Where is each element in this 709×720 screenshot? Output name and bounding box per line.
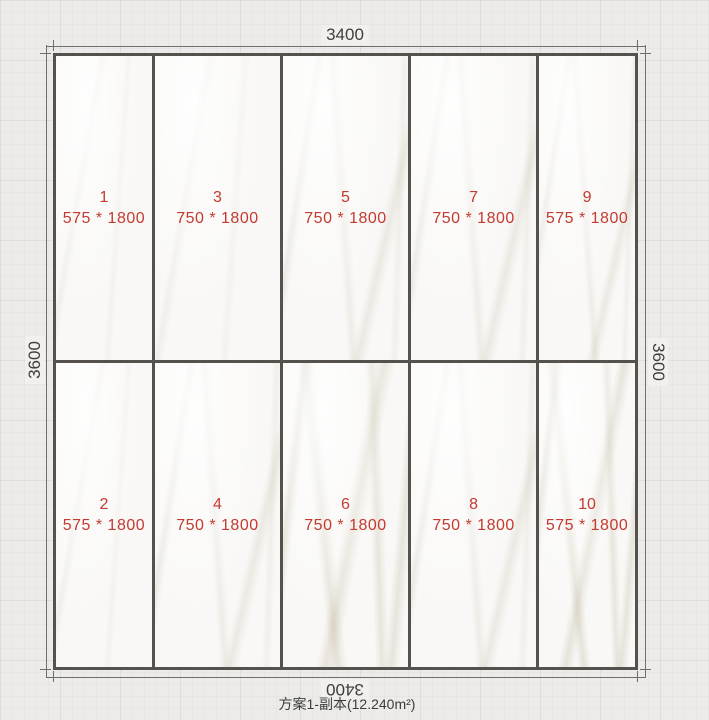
tile[interactable]: 4 750 * 1800 [155,363,280,667]
tile-label: 7 750 * 1800 [432,188,514,229]
tile-label: 10 575 * 1800 [546,495,628,536]
tile-label: 8 750 * 1800 [432,495,514,536]
tile-number: 2 [63,495,145,515]
tile-number: 4 [176,495,258,515]
tile-label: 6 750 * 1800 [304,495,386,536]
tile[interactable]: 10 575 * 1800 [539,363,635,667]
tile-label: 5 750 * 1800 [304,188,386,229]
tile-size: 750 * 1800 [432,515,514,536]
tile-number: 3 [176,188,258,208]
dimension-label-left: 3600 [25,336,45,384]
tile-size: 750 * 1800 [304,515,386,536]
tile[interactable]: 3 750 * 1800 [155,56,280,360]
dimension-tick [637,40,638,51]
tile-number: 10 [546,495,628,515]
tile-size: 750 * 1800 [304,208,386,229]
tile[interactable]: 5 750 * 1800 [283,56,408,360]
tile-label: 1 575 * 1800 [63,188,145,229]
tile-number: 5 [304,188,386,208]
dimension-tick [640,669,651,670]
tile-label: 2 575 * 1800 [63,495,145,536]
tile-size: 750 * 1800 [176,208,258,229]
tile[interactable]: 7 750 * 1800 [411,56,536,360]
dimension-line-left [46,45,47,678]
tile[interactable]: 9 575 * 1800 [539,56,635,360]
tile-number: 9 [546,188,628,208]
tile-label: 4 750 * 1800 [176,495,258,536]
tile-number: 6 [304,495,386,515]
tile-size: 575 * 1800 [546,515,628,536]
dimension-line-bottom [47,677,646,678]
tile-number: 7 [432,188,514,208]
dimension-tick [637,671,638,682]
dimension-tick [53,671,54,682]
dimension-tick [53,40,54,51]
dimension-tick [40,669,51,670]
tile[interactable]: 1 575 * 1800 [56,56,152,360]
tile-size: 575 * 1800 [546,208,628,229]
dimension-line-top [47,46,646,47]
scheme-caption: 方案1-副本(12.240m²) [279,694,416,714]
dimension-label-top: 3400 [321,25,369,45]
dimension-tick [40,53,51,54]
dimension-label-right: 3600 [648,338,668,386]
tile-label: 9 575 * 1800 [546,188,628,229]
dimension-line-right [645,45,646,678]
tile[interactable]: 6 750 * 1800 [283,363,408,667]
layout-canvas: 1 575 * 1800 3 750 * 1800 5 750 * 1800 7… [0,0,709,720]
tile-size: 750 * 1800 [432,208,514,229]
tile[interactable]: 2 575 * 1800 [56,363,152,667]
tile-label: 3 750 * 1800 [176,188,258,229]
tile[interactable]: 8 750 * 1800 [411,363,536,667]
tile-number: 8 [432,495,514,515]
dimension-tick [640,53,651,54]
tile-grid: 1 575 * 1800 3 750 * 1800 5 750 * 1800 7… [53,53,638,670]
tile-number: 1 [63,188,145,208]
tile-size: 750 * 1800 [176,515,258,536]
tile-size: 575 * 1800 [63,515,145,536]
tile-size: 575 * 1800 [63,208,145,229]
